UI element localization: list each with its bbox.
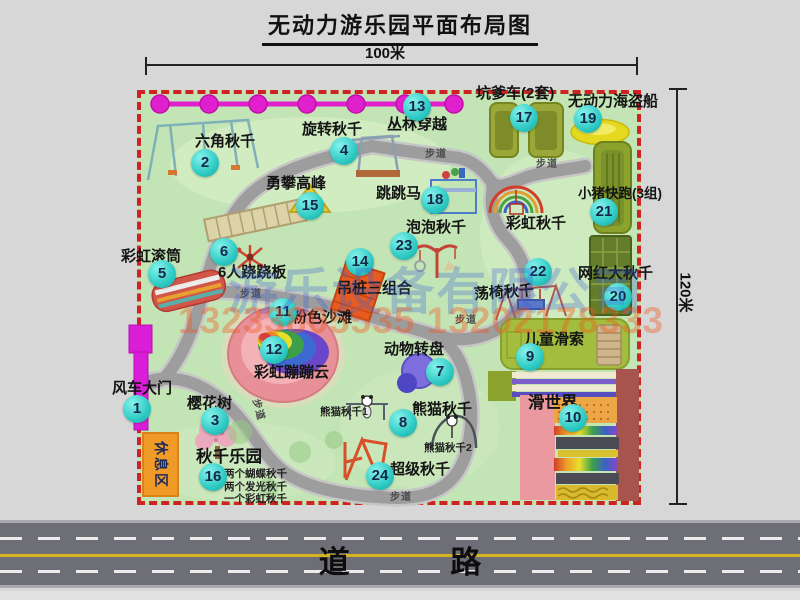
swing-park-detail-3: 一个彩虹秋千 bbox=[224, 491, 287, 506]
width-dimension-label: 100米 bbox=[365, 42, 405, 63]
road-label: 道 路 bbox=[0, 537, 800, 582]
road: 道 路 bbox=[0, 520, 800, 588]
label-panda-swing: 熊猫秋千 bbox=[412, 402, 472, 419]
marker-3: 3 bbox=[201, 407, 229, 435]
label-rotating-swing: 旋转秋千 bbox=[302, 122, 362, 139]
label-panda-swing-2: 熊猫秋千2 bbox=[424, 440, 472, 455]
marker-10: 10 bbox=[559, 404, 587, 432]
below-road-strip bbox=[0, 591, 800, 600]
label-animal-turntable: 动物转盘 bbox=[384, 342, 444, 359]
marker-17: 17 bbox=[510, 104, 538, 132]
label-climbing-peak: 勇攀高峰 bbox=[266, 176, 326, 193]
marker-4: 4 bbox=[330, 137, 358, 165]
marker-9: 9 bbox=[516, 343, 544, 371]
label-bounce-cloud: 彩虹蹦蹦云 bbox=[254, 365, 329, 382]
marker-15: 15 bbox=[296, 192, 324, 220]
label-rainbow-swing: 彩虹秋千 bbox=[506, 216, 566, 233]
label-super-swing: 超级秋千 bbox=[390, 462, 450, 479]
walkway-label: 步道 bbox=[536, 155, 558, 170]
marker-19: 19 bbox=[574, 105, 602, 133]
watermark-phone: 13233805535 13202178333 bbox=[178, 300, 664, 342]
marker-7: 7 bbox=[426, 358, 454, 386]
walkway-label: 步道 bbox=[425, 145, 447, 160]
marker-1: 1 bbox=[123, 395, 151, 423]
width-dimension-line bbox=[145, 64, 638, 66]
marker-5: 5 bbox=[148, 260, 176, 288]
rest-area-label: 休息区 bbox=[151, 441, 171, 489]
park-layout-map: 无动力游乐园平面布局图 100米 120米 bbox=[0, 0, 800, 600]
walkway-label: 步道 bbox=[390, 488, 412, 503]
page-title: 无动力游乐园平面布局图 bbox=[262, 8, 538, 46]
label-bubble-swing: 泡泡秋千 bbox=[406, 220, 466, 237]
marker-24: 24 bbox=[366, 462, 394, 490]
rest-area: 休息区 bbox=[142, 432, 179, 497]
label-rainbow-roller: 彩虹滚筒 bbox=[121, 249, 181, 266]
label-jumping-horse: 跳跳马 bbox=[376, 186, 421, 203]
marker-8: 8 bbox=[389, 409, 417, 437]
label-panda-swing-1: 熊猫秋千1 bbox=[320, 404, 368, 419]
label-pedal-cart: 坑爹车(2套) bbox=[476, 86, 554, 103]
marker-21: 21 bbox=[590, 198, 618, 226]
marker-18: 18 bbox=[421, 186, 449, 214]
marker-2: 2 bbox=[191, 149, 219, 177]
marker-13: 13 bbox=[403, 93, 431, 121]
height-dimension-label: 120米 bbox=[676, 272, 697, 312]
marker-16: 16 bbox=[199, 463, 227, 491]
label-pig-run: 小猪快跑(3组) bbox=[578, 187, 662, 202]
